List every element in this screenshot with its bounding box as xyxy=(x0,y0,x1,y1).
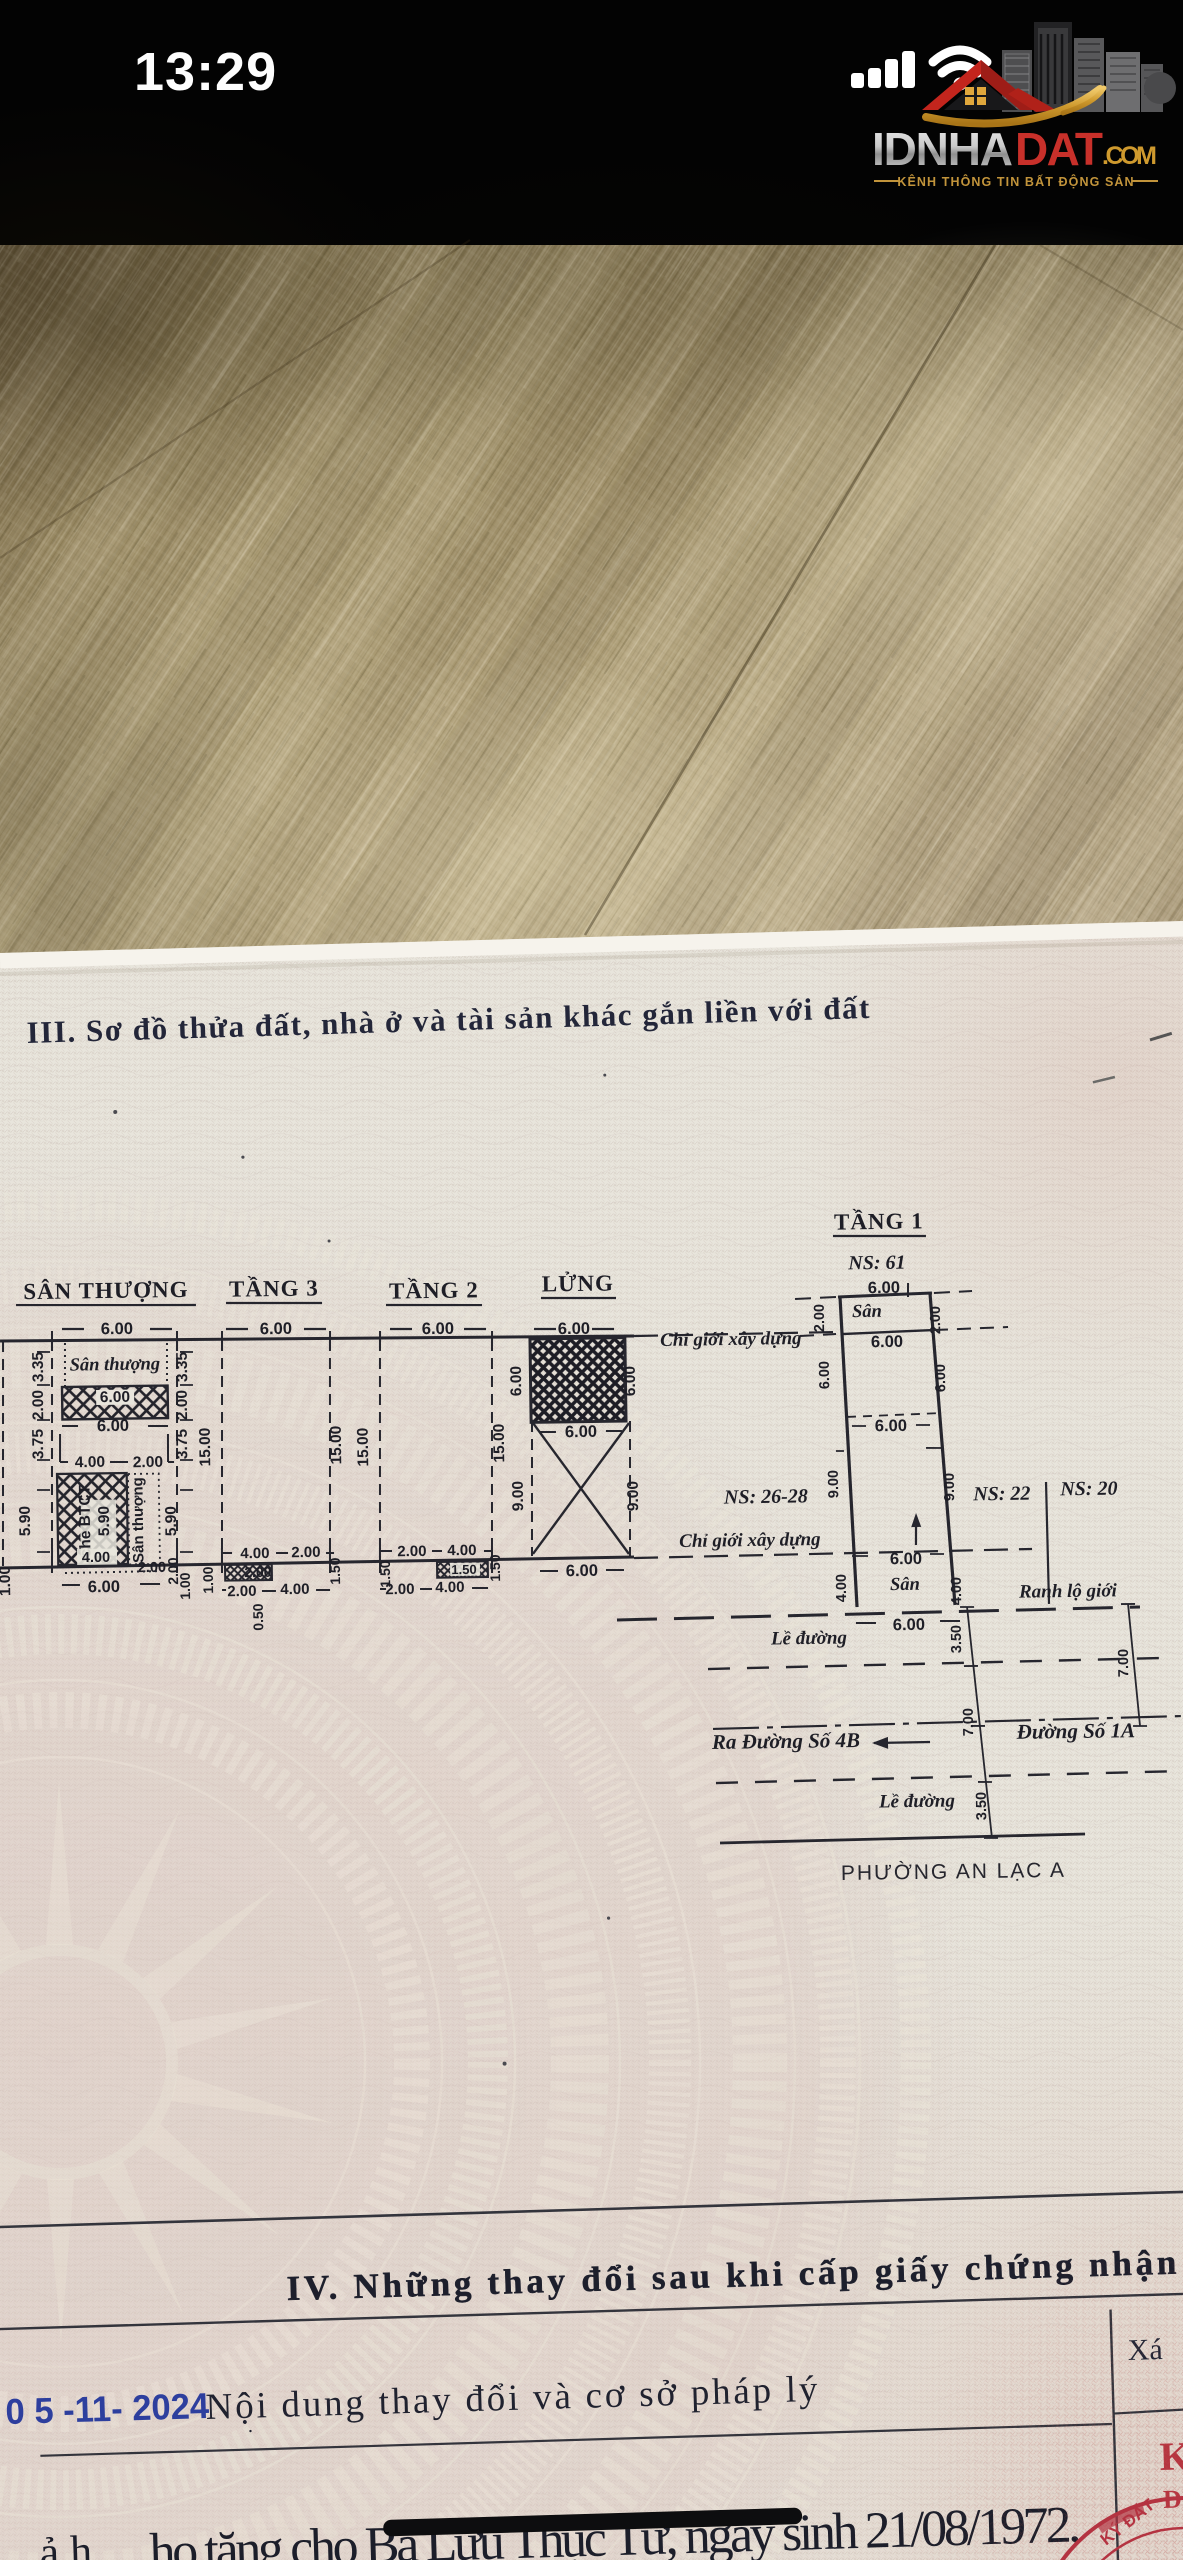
svg-text:7.00: 7.00 xyxy=(1116,1649,1132,1677)
svg-text:4.00: 4.00 xyxy=(447,1542,476,1559)
svg-text:ả h: ả h xyxy=(39,2526,93,2560)
svg-text:0 5 -11- 2024: 0 5 -11- 2024 xyxy=(5,2386,210,2432)
svg-text:DAT: DAT xyxy=(1015,123,1103,175)
svg-text:6.00: 6.00 xyxy=(508,1366,525,1396)
svg-text:5.90: 5.90 xyxy=(96,1506,113,1536)
svg-text:3.75: 3.75 xyxy=(30,1428,47,1459)
svg-text:TẦNG 1: TẦNG 1 xyxy=(834,1207,924,1234)
svg-text:6.00: 6.00 xyxy=(422,1320,454,1338)
svg-text:Lề đường: Lề đường xyxy=(770,1627,847,1649)
svg-text:6.00: 6.00 xyxy=(97,1417,129,1435)
svg-text:15.00: 15.00 xyxy=(328,1426,346,1465)
svg-text:2.00: 2.00 xyxy=(133,1454,163,1471)
svg-text:1.50: 1.50 xyxy=(377,1560,393,1588)
svg-text:1.00: 1.00 xyxy=(200,1566,216,1594)
svg-text:15.00: 15.00 xyxy=(491,1424,509,1463)
svg-text:TẦNG 3: TẦNG 3 xyxy=(229,1274,319,1301)
svg-text:6.00: 6.00 xyxy=(565,1423,597,1441)
svg-text:3.50: 3.50 xyxy=(949,1625,965,1653)
svg-text:2.00: 2.00 xyxy=(291,1544,320,1561)
svg-text:1.00: 1.00 xyxy=(177,1572,193,1600)
svg-text:IDNHA: IDNHA xyxy=(872,123,1013,175)
svg-text:1.50: 1.50 xyxy=(451,1562,477,1577)
svg-text:6.00: 6.00 xyxy=(890,1550,922,1568)
svg-text:3.35: 3.35 xyxy=(30,1351,47,1382)
svg-text:15.00: 15.00 xyxy=(197,1427,215,1466)
svg-text:1.00: 1.00 xyxy=(0,1566,14,1596)
svg-text:0.50: 0.50 xyxy=(250,1603,266,1631)
svg-text:Ranh lộ giới: Ranh lộ giới xyxy=(1018,1580,1118,1602)
svg-text:6.00: 6.00 xyxy=(875,1417,907,1435)
svg-text:9.00: 9.00 xyxy=(942,1473,958,1501)
svg-text:3.75: 3.75 xyxy=(174,1428,191,1459)
svg-text:PHƯỜNG AN LẠC A: PHƯỜNG AN LẠC A xyxy=(841,1859,1066,1885)
svg-text:NS: 26-28: NS: 26-28 xyxy=(723,1485,808,1508)
svg-text:2.00: 2.00 xyxy=(397,1543,426,1560)
svg-text:1.50: 1.50 xyxy=(327,1557,343,1585)
svg-text:4.00: 4.00 xyxy=(834,1574,850,1602)
svg-text:KÊNH THÔNG TIN BẤT ĐỘNG SẢN: KÊNH THÔNG TIN BẤT ĐỘNG SẢN xyxy=(897,174,1134,189)
svg-text:4.00: 4.00 xyxy=(280,1581,309,1598)
svg-text:6.00: 6.00 xyxy=(893,1616,925,1634)
svg-text:Lề đường: Lề đường xyxy=(878,1790,955,1812)
svg-text:13:29: 13:29 xyxy=(134,42,277,102)
svg-text:Ra Đường Số 4B: Ra Đường Số 4B xyxy=(711,1728,860,1754)
svg-text:4.00: 4.00 xyxy=(240,1545,269,1562)
svg-text:2.00: 2.00 xyxy=(227,1583,256,1600)
svg-text:TẦNG 2: TẦNG 2 xyxy=(389,1276,479,1303)
svg-text:6.00: 6.00 xyxy=(260,1320,292,1338)
svg-text:3.35: 3.35 xyxy=(174,1351,191,1382)
svg-text:2.00: 2.00 xyxy=(30,1390,47,1420)
svg-text:4.00: 4.00 xyxy=(82,1550,110,1566)
svg-text:NS: 61: NS: 61 xyxy=(847,1252,906,1275)
svg-text:6.00: 6.00 xyxy=(868,1279,900,1297)
svg-text:15.00: 15.00 xyxy=(355,1428,373,1467)
svg-text:NS: 22: NS: 22 xyxy=(972,1483,1031,1506)
svg-text:3.50: 3.50 xyxy=(974,1792,990,1820)
svg-text:4.00: 4.00 xyxy=(435,1579,464,1596)
svg-text:9.00: 9.00 xyxy=(625,1481,642,1511)
svg-text:LỬNG: LỬNG xyxy=(542,1270,614,1296)
svg-text:2.00: 2.00 xyxy=(812,1304,828,1332)
svg-text:Sân: Sân xyxy=(890,1575,920,1595)
svg-text:4.00: 4.00 xyxy=(949,1577,965,1605)
svg-text:SÂN THƯỢNG: SÂN THƯỢNG xyxy=(23,1276,189,1304)
svg-text:Đường Số 1A: Đường Số 1A xyxy=(1016,1718,1136,1744)
svg-text:5.90: 5.90 xyxy=(17,1506,34,1536)
svg-text:6.00: 6.00 xyxy=(88,1578,120,1596)
svg-text:9.00: 9.00 xyxy=(510,1481,527,1511)
svg-text:Sân thượng: Sân thượng xyxy=(70,1354,161,1375)
svg-text:2.00: 2.00 xyxy=(138,1560,166,1576)
svg-text:6.00: 6.00 xyxy=(101,1320,133,1338)
svg-text:6.00: 6.00 xyxy=(817,1361,833,1389)
svg-text:2.00: 2.00 xyxy=(174,1390,191,1420)
svg-text:6.00: 6.00 xyxy=(100,1389,130,1406)
svg-text:Chỉ giới xây dựng: Chỉ giới xây dựng xyxy=(679,1529,821,1552)
svg-text:1.50: 1.50 xyxy=(487,1554,503,1582)
svg-text:Sân thượng: Sân thượng xyxy=(129,1477,147,1563)
svg-text:5.90: 5.90 xyxy=(163,1506,180,1536)
svg-text:6.00: 6.00 xyxy=(933,1364,949,1392)
svg-text:Chỉ giới xây dựng: Chỉ giới xây dựng xyxy=(660,1328,802,1351)
svg-text:che BTCT: che BTCT xyxy=(76,1484,94,1557)
svg-text:NS: 20: NS: 20 xyxy=(1059,1478,1118,1501)
svg-text:.: . xyxy=(247,2415,253,2437)
svg-text:4.00: 4.00 xyxy=(75,1454,105,1471)
svg-text:6.00: 6.00 xyxy=(622,1366,639,1396)
svg-text:.COM: .COM xyxy=(1102,142,1157,170)
svg-text:Sân: Sân xyxy=(852,1302,882,1322)
svg-text:9.00: 9.00 xyxy=(826,1470,842,1498)
svg-text:6.00: 6.00 xyxy=(871,1333,903,1351)
svg-text:2.00: 2.00 xyxy=(244,1564,272,1580)
svg-text:6.00: 6.00 xyxy=(566,1562,598,1580)
